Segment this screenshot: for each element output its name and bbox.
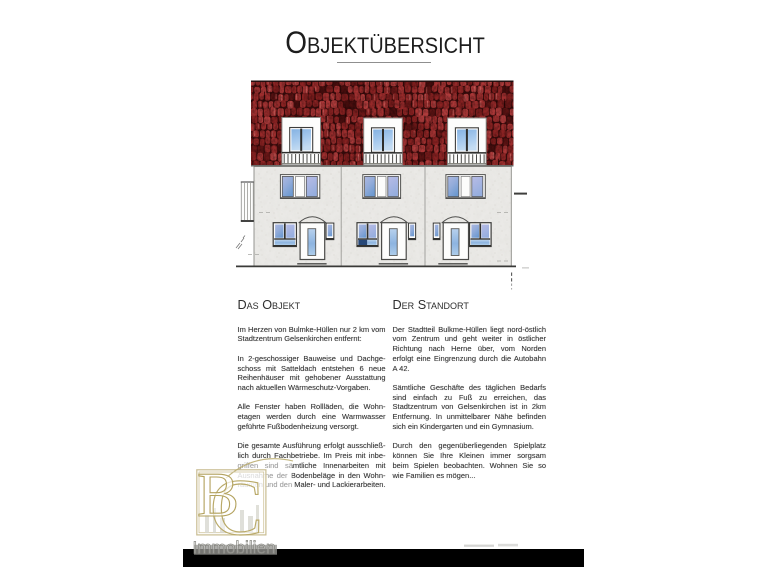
svg-text:B: B xyxy=(197,460,239,530)
svg-text:Immobilien: Immobilien xyxy=(193,538,276,558)
